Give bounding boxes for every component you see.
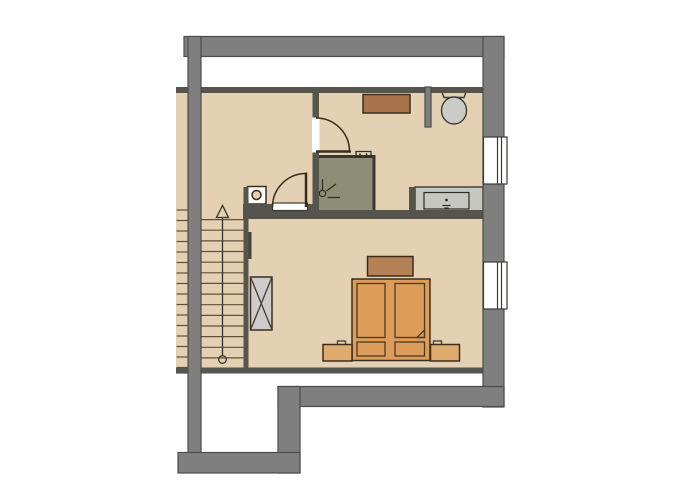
window-upper [484,137,508,184]
wall-bottom-left [178,453,300,474]
shower [316,152,375,212]
nightstand-right [431,341,460,361]
wall-hall-bathroom-upper [313,87,320,118]
floor-main [201,93,483,373]
wall-bottom-right [278,387,504,407]
chimney [248,187,267,205]
floor-stair-side-strip [176,92,189,374]
wall-top [184,37,504,57]
counter-top [415,187,483,211]
chimney-flue-icon [252,191,261,200]
window-lower [484,262,508,309]
wall-counter-stub [409,187,415,211]
toilet-bowl [442,97,467,124]
wall-left [188,37,201,458]
wardrobe [251,277,273,330]
nightstand-body [323,345,352,362]
floor-plan-page [0,0,700,500]
double-bed [352,279,430,361]
wall-right [483,37,504,408]
door-opening [312,118,320,153]
wall-bedroom-bottom [176,368,483,374]
floor-plan-canvas [0,0,700,500]
wall-bedroom-top [243,210,483,219]
wall-hall-bathroom-lower [313,152,320,212]
shower-tray [316,157,375,212]
toilet [441,88,468,124]
nightstand-left [323,341,352,361]
wall-stair-bedroom [244,187,249,368]
bed-frame [352,279,430,361]
headboard-shelf [368,257,414,277]
wall-under-headroom-strip [176,87,483,93]
bathroom-cabinet [363,95,410,114]
washbasin-counter [415,187,483,211]
nightstand-body [431,345,460,362]
door-opening [273,203,308,211]
wall-toilet-stub [425,87,431,127]
washbasin-drain-icon [445,199,448,202]
